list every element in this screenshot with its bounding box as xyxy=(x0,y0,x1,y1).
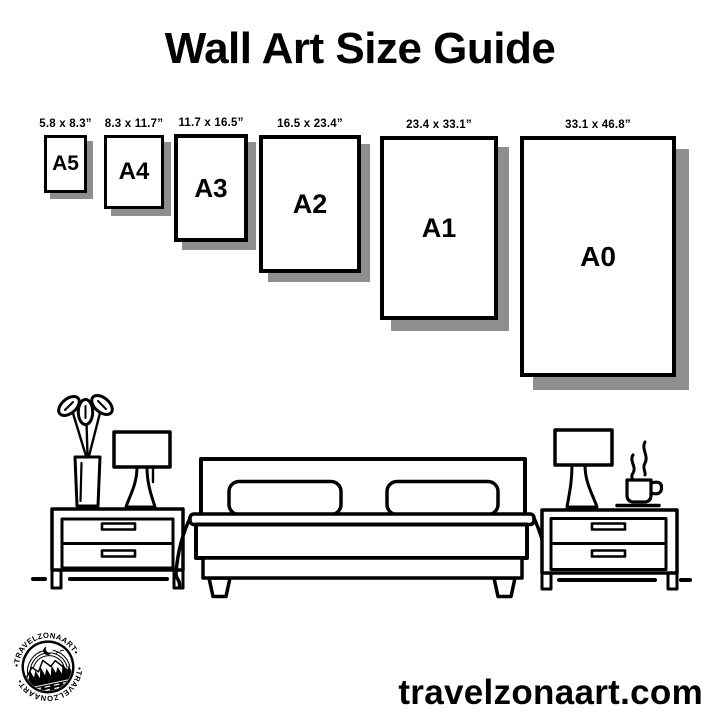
brand-logo: •TRAVELZONAART• •TRAVELZONAART• xyxy=(5,622,91,710)
cup-body xyxy=(627,480,651,502)
steam xyxy=(644,442,646,475)
bed-leg xyxy=(209,578,230,597)
size-item-a3: 11.7 x 16.5” A3 xyxy=(174,134,248,242)
size-label: A5 xyxy=(52,152,79,176)
size-item-a4: 8.3 x 11.7” A4 xyxy=(104,135,164,209)
size-dimension-label: 23.4 x 33.1” xyxy=(406,119,472,131)
coffee-cup-icon xyxy=(617,442,662,506)
mattress xyxy=(196,525,527,559)
size-item-a5: 5.8 x 8.3” A5 xyxy=(44,135,87,193)
bedroom-illustration xyxy=(25,383,695,600)
size-label: A3 xyxy=(194,173,227,204)
size-item-a0: 33.1 x 46.8” A0 xyxy=(520,136,676,377)
page-title: Wall Art Size Guide xyxy=(0,24,720,74)
size-dimension-label: 33.1 x 46.8” xyxy=(565,119,631,131)
right-lamp-icon xyxy=(555,430,612,507)
size-label: A1 xyxy=(422,213,457,244)
bed-leg xyxy=(494,578,515,597)
paper-a0: A0 xyxy=(520,136,676,377)
right-nightstand-icon xyxy=(542,510,677,589)
paper-a1: A1 xyxy=(380,136,498,320)
poster: Wall Art Size Guide 5.8 x 8.3” A5 8.3 x … xyxy=(0,0,720,720)
pillow-left xyxy=(229,482,341,515)
paper-a4: A4 xyxy=(104,135,164,209)
paper-a5: A5 xyxy=(44,135,87,193)
size-dimension-label: 11.7 x 16.5” xyxy=(178,117,243,129)
paper-a3: A3 xyxy=(174,134,248,242)
bed-icon xyxy=(176,459,548,597)
pillow-right xyxy=(387,482,498,515)
steam xyxy=(632,455,634,482)
left-lamp-icon xyxy=(114,432,170,507)
left-nightstand-icon xyxy=(52,509,183,588)
vase-with-leaves-icon xyxy=(55,392,116,506)
size-dimension-label: 5.8 x 8.3” xyxy=(39,118,92,130)
size-item-a1: 23.4 x 33.1” A1 xyxy=(380,136,498,320)
size-label: A0 xyxy=(580,241,616,273)
paper-a2: A2 xyxy=(259,135,361,273)
size-dimension-label: 8.3 x 11.7” xyxy=(105,118,163,130)
size-dimension-label: 16.5 x 23.4” xyxy=(277,118,343,130)
size-item-a2: 16.5 x 23.4” A2 xyxy=(259,135,361,273)
size-label: A2 xyxy=(293,189,328,220)
bed-base xyxy=(203,558,522,578)
website-url: travelzonaart.com xyxy=(398,673,703,713)
size-label: A4 xyxy=(119,158,150,186)
